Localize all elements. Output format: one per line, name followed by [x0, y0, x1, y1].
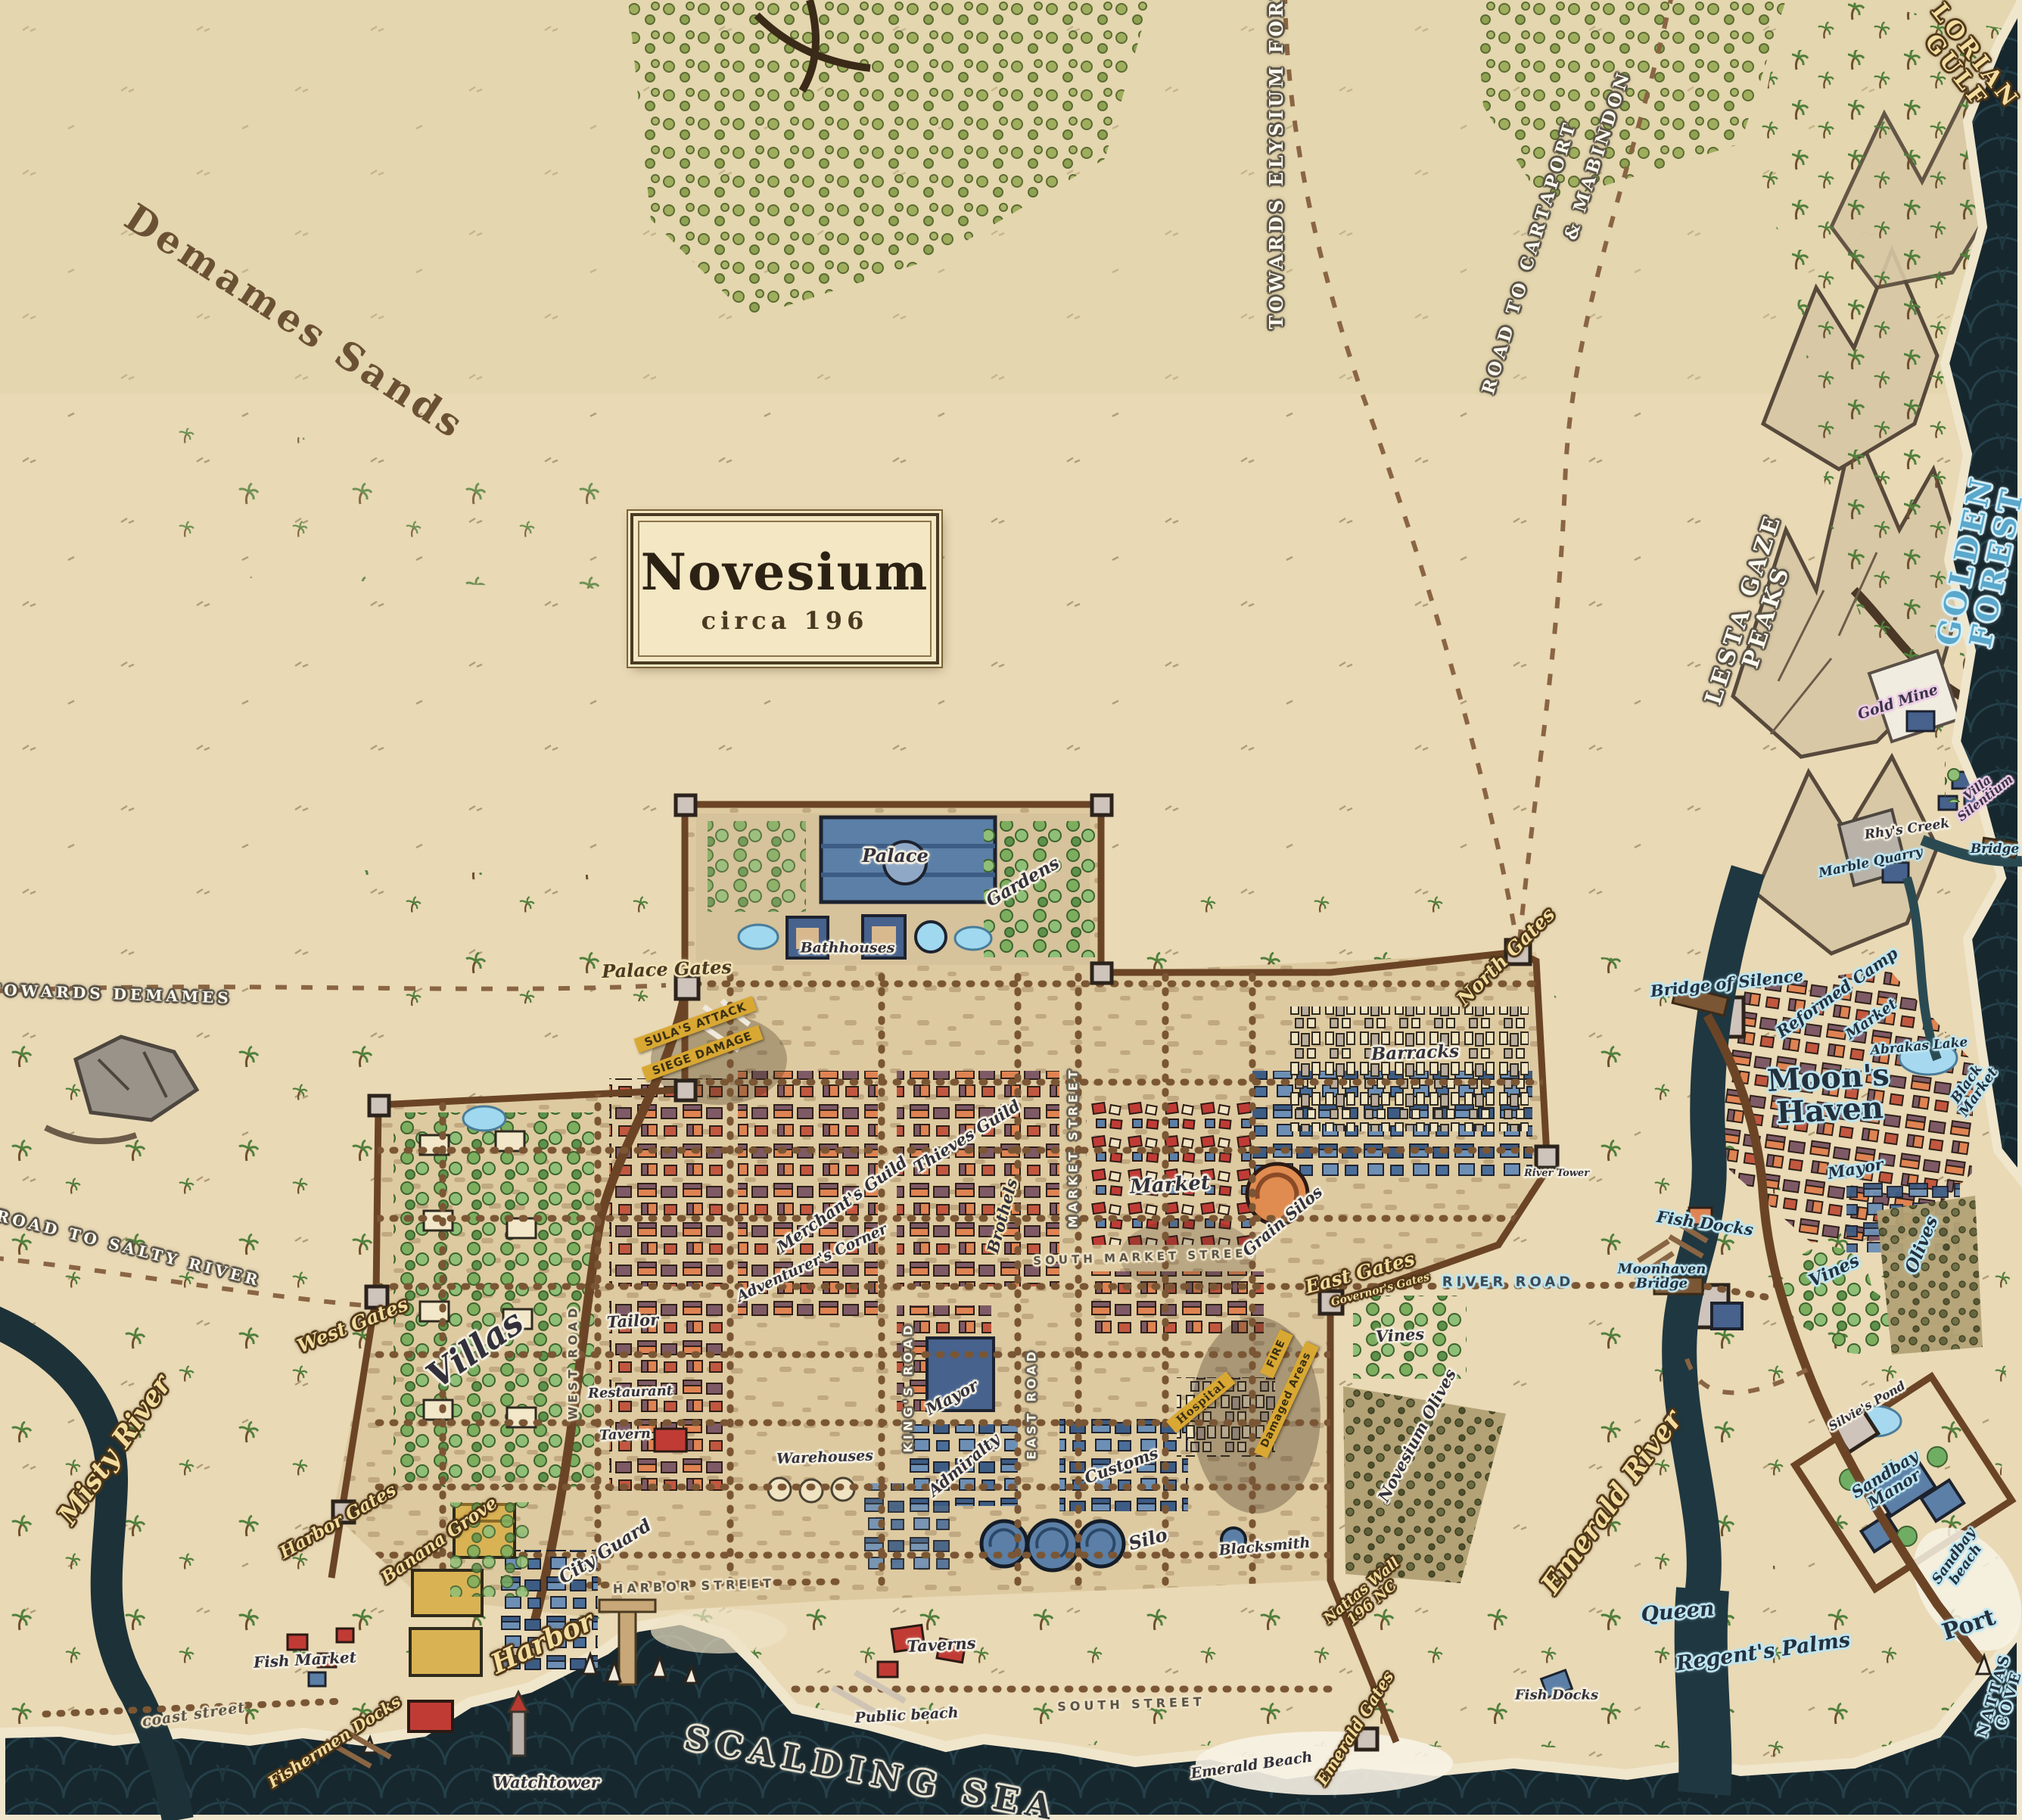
map-title-cartouche: Novesium circa 196 [630, 513, 939, 664]
map-artwork [0, 0, 2022, 1820]
map-title: Novesium [641, 543, 929, 602]
fantasy-city-map: Demames Sands LORIAN GULF TOWARDS ELYSIU… [0, 0, 2022, 1820]
map-subtitle: circa 196 [701, 606, 869, 635]
